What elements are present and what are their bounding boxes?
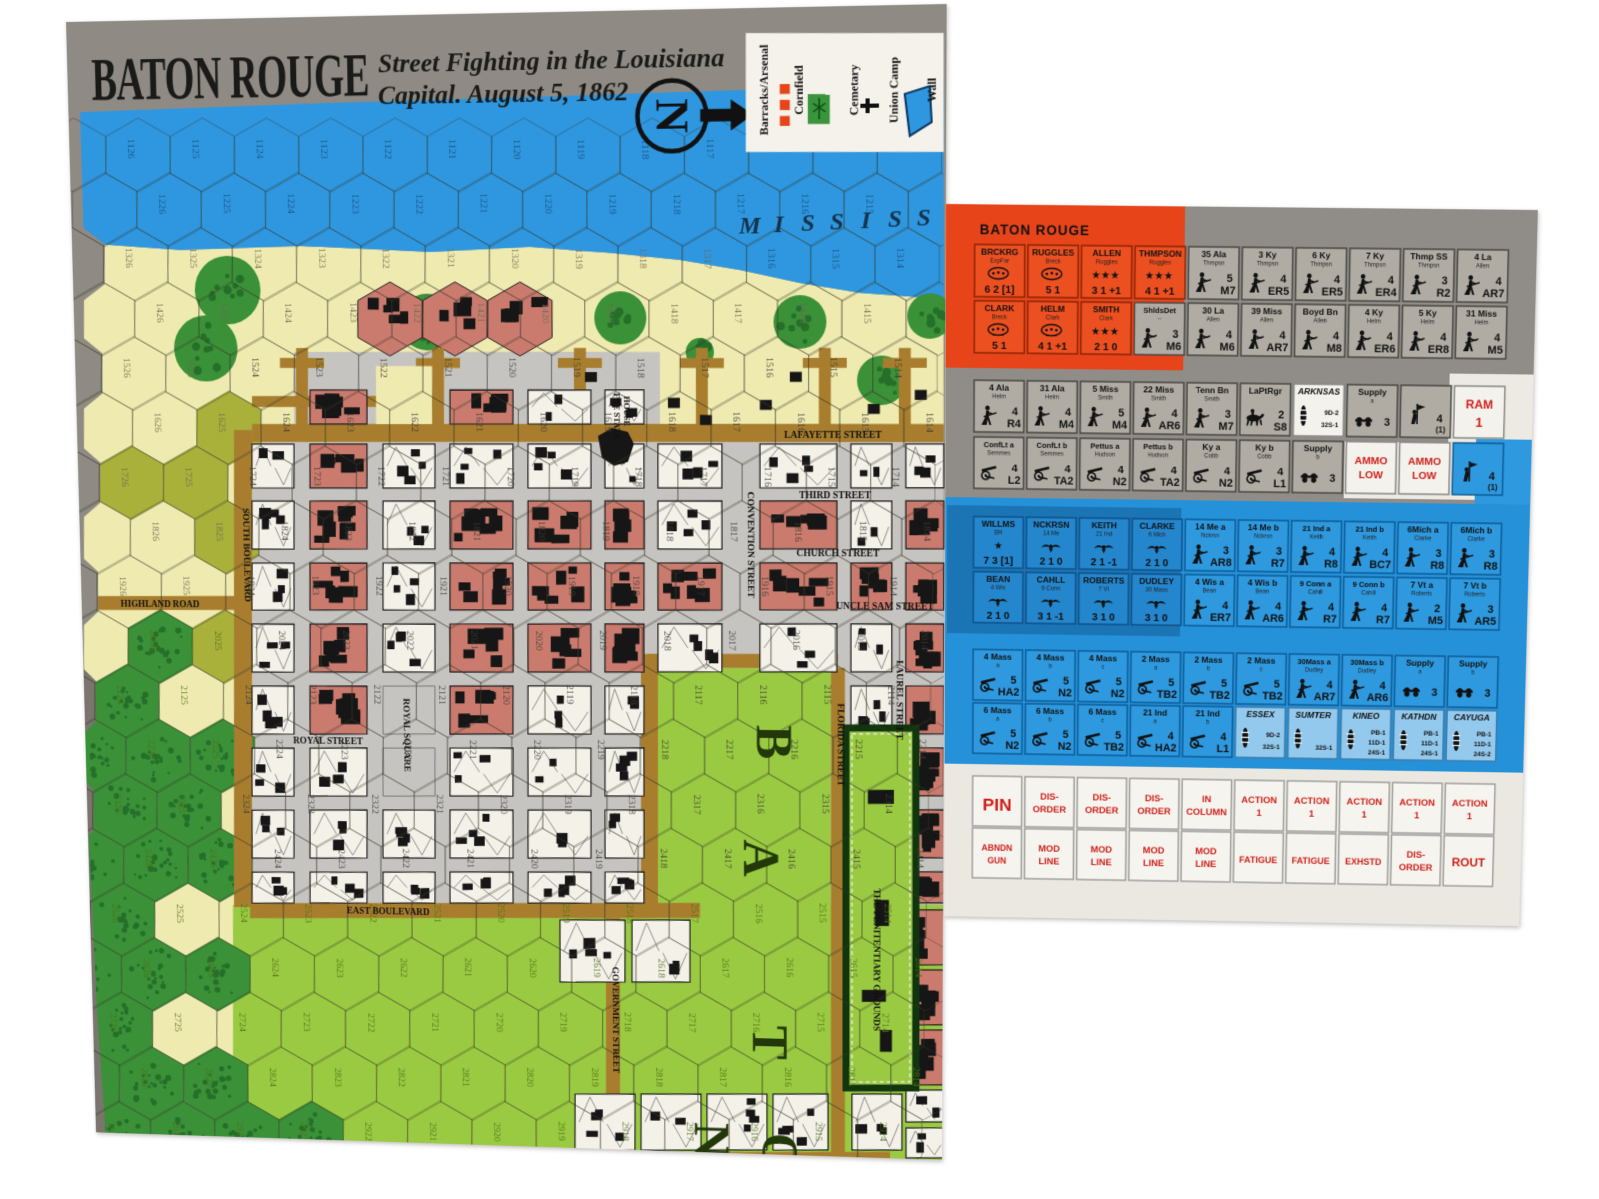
svg-text:6Mich a: 6Mich a bbox=[1407, 524, 1439, 534]
svg-text:2116: 2116 bbox=[757, 685, 768, 705]
svg-text:M5: M5 bbox=[1488, 344, 1504, 356]
svg-text:ACTION: ACTION bbox=[1241, 795, 1277, 806]
svg-text:2: 2 bbox=[1434, 603, 1440, 615]
svg-text:Wall: Wall bbox=[926, 78, 939, 102]
svg-text:4 La: 4 La bbox=[1474, 252, 1492, 262]
svg-text:ALLEN: ALLEN bbox=[1092, 248, 1121, 258]
svg-text:2719: 2719 bbox=[557, 1012, 568, 1032]
svg-text:THE PENITENTIARY GROUNDS: THE PENITENTIARY GROUNDS bbox=[871, 888, 881, 1031]
svg-text:N2: N2 bbox=[1058, 687, 1072, 699]
svg-text:1319: 1319 bbox=[573, 248, 584, 269]
svg-text:2721: 2721 bbox=[429, 1013, 440, 1033]
svg-text:5 Ky: 5 Ky bbox=[1419, 308, 1438, 318]
svg-text:2816: 2816 bbox=[782, 1067, 793, 1087]
svg-text:4: 4 bbox=[1171, 465, 1178, 477]
svg-text:I: I bbox=[773, 211, 784, 238]
svg-text:R4: R4 bbox=[1007, 418, 1022, 430]
svg-text:1: 1 bbox=[1361, 810, 1367, 821]
svg-text:LOW: LOW bbox=[1359, 469, 1383, 481]
svg-text:2318: 2318 bbox=[626, 795, 637, 815]
svg-text:1822: 1822 bbox=[406, 521, 417, 541]
svg-text:N2: N2 bbox=[1219, 477, 1233, 489]
svg-text:24S-1: 24S-1 bbox=[1421, 750, 1439, 757]
svg-text:1318: 1318 bbox=[637, 248, 648, 269]
svg-text:Nckrsn: Nckrsn bbox=[1254, 534, 1273, 540]
svg-text:Cobb: Cobb bbox=[1204, 453, 1219, 459]
svg-text:SUMTER: SUMTER bbox=[1295, 710, 1331, 720]
svg-text:2615: 2615 bbox=[847, 958, 858, 978]
svg-text:LINE: LINE bbox=[1195, 859, 1217, 870]
svg-text:1717: 1717 bbox=[697, 466, 708, 486]
svg-text:1: 1 bbox=[1414, 811, 1420, 822]
svg-text:14 Me a: 14 Me a bbox=[1195, 522, 1226, 532]
svg-text:Clarke: Clarke bbox=[1467, 537, 1485, 543]
svg-text:5: 5 bbox=[1010, 728, 1016, 740]
svg-text:R8: R8 bbox=[1324, 558, 1338, 570]
svg-text:7 Vt a: 7 Vt a bbox=[1410, 580, 1433, 590]
svg-text:Helm: Helm bbox=[1045, 395, 1059, 401]
svg-text:ARKNSAS: ARKNSAS bbox=[1297, 386, 1341, 397]
svg-text:S: S bbox=[801, 209, 815, 236]
svg-text:Union Camp: Union Camp bbox=[888, 57, 901, 123]
svg-text:2921: 2921 bbox=[427, 1122, 438, 1141]
svg-text:AR5: AR5 bbox=[1474, 616, 1496, 628]
svg-text:4: 4 bbox=[1328, 602, 1335, 614]
svg-text:4: 4 bbox=[1171, 408, 1178, 420]
svg-text:1419: 1419 bbox=[604, 303, 615, 324]
svg-text:AMMO: AMMO bbox=[1408, 456, 1441, 468]
svg-text:Keith: Keith bbox=[1310, 535, 1324, 541]
svg-text:3 Ky: 3 Ky bbox=[1258, 250, 1276, 260]
svg-text:35 Ala: 35 Ala bbox=[1201, 249, 1226, 259]
svg-text:Allen: Allen bbox=[1313, 318, 1326, 324]
svg-text:R7: R7 bbox=[1323, 614, 1337, 626]
svg-text:1: 1 bbox=[1467, 811, 1473, 822]
svg-text:1720: 1720 bbox=[505, 466, 516, 486]
svg-text:BEAN: BEAN bbox=[986, 574, 1010, 584]
svg-text:2516: 2516 bbox=[753, 904, 764, 924]
svg-text:4 Ala: 4 Ala bbox=[989, 382, 1009, 392]
svg-text:4: 4 bbox=[1388, 275, 1395, 287]
svg-text:THIRD STREET: THIRD STREET bbox=[799, 491, 872, 501]
svg-text:2722: 2722 bbox=[365, 1013, 376, 1033]
svg-text:2226: 2226 bbox=[145, 739, 156, 759]
svg-text:2424: 2424 bbox=[272, 849, 283, 869]
svg-text:4: 4 bbox=[1495, 276, 1502, 288]
svg-text:4: 4 bbox=[1436, 413, 1443, 425]
svg-text:1722: 1722 bbox=[375, 466, 386, 486]
svg-text:1624: 1624 bbox=[280, 412, 291, 432]
svg-text:1421: 1421 bbox=[475, 302, 486, 322]
svg-text:M7: M7 bbox=[1220, 285, 1235, 297]
svg-text:1324: 1324 bbox=[252, 248, 263, 268]
svg-text:4: 4 bbox=[1327, 679, 1334, 691]
svg-text:Cemetary: Cemetary bbox=[848, 64, 861, 115]
svg-text:S: S bbox=[830, 208, 844, 235]
svg-text:DIS-: DIS- bbox=[1145, 793, 1164, 804]
svg-text:2724: 2724 bbox=[237, 1012, 248, 1031]
svg-text:1614: 1614 bbox=[923, 412, 934, 433]
svg-text:Barracks/Arsenal: Barracks/Arsenal bbox=[758, 44, 771, 135]
svg-text:1922: 1922 bbox=[373, 576, 384, 596]
svg-text:1217: 1217 bbox=[735, 193, 746, 214]
svg-text:M8: M8 bbox=[1327, 343, 1342, 355]
svg-text:1418: 1418 bbox=[668, 303, 679, 324]
svg-text:EAST BOULEVARD: EAST BOULEVARD bbox=[347, 906, 430, 918]
svg-text:N: N bbox=[646, 98, 698, 134]
svg-text:2723: 2723 bbox=[301, 1012, 312, 1031]
svg-text:4: 4 bbox=[1224, 465, 1231, 477]
svg-text:Bean: Bean bbox=[1255, 589, 1269, 595]
svg-text:31 Miss: 31 Miss bbox=[1466, 308, 1497, 318]
svg-text:Supply: Supply bbox=[1459, 659, 1488, 669]
svg-text:Ky b: Ky b bbox=[1255, 443, 1274, 453]
svg-text:TA2: TA2 bbox=[1054, 475, 1074, 487]
svg-text:NCKRSN: NCKRSN bbox=[1033, 519, 1069, 529]
svg-text:Smith: Smith bbox=[1151, 396, 1166, 402]
svg-text:2623: 2623 bbox=[334, 958, 345, 978]
svg-text:1524: 1524 bbox=[249, 357, 260, 377]
svg-text:PIN: PIN bbox=[982, 795, 1011, 815]
svg-text:1714: 1714 bbox=[889, 467, 900, 488]
svg-text:AR6: AR6 bbox=[1159, 420, 1181, 432]
svg-text:1415: 1415 bbox=[861, 303, 872, 324]
svg-text:--: -- bbox=[1158, 317, 1162, 323]
svg-text:4 1 +1: 4 1 +1 bbox=[1038, 340, 1067, 352]
svg-text:T: T bbox=[741, 1025, 798, 1060]
svg-text:2715: 2715 bbox=[815, 1012, 826, 1032]
svg-text:Cahill: Cahill bbox=[1361, 591, 1376, 597]
svg-text:2016: 2016 bbox=[790, 630, 801, 650]
svg-text:2718: 2718 bbox=[622, 1012, 633, 1032]
svg-text:4: 4 bbox=[1226, 329, 1233, 341]
svg-text:1814: 1814 bbox=[921, 521, 932, 542]
svg-text:1823: 1823 bbox=[342, 521, 353, 541]
svg-text:2325: 2325 bbox=[176, 794, 187, 814]
svg-text:Roberts: Roberts bbox=[1411, 591, 1432, 597]
svg-text:5: 5 bbox=[1221, 678, 1227, 690]
svg-text:2922: 2922 bbox=[362, 1122, 373, 1141]
svg-text:1620: 1620 bbox=[537, 412, 548, 432]
svg-text:COLUMN: COLUMN bbox=[1186, 807, 1227, 818]
svg-text:4 Mass: 4 Mass bbox=[1036, 652, 1064, 662]
svg-text:M4: M4 bbox=[1112, 419, 1128, 431]
svg-text:1323: 1323 bbox=[316, 248, 327, 268]
svg-text:2021: 2021 bbox=[468, 630, 479, 650]
svg-text:4: 4 bbox=[1379, 680, 1386, 692]
svg-text:c: c bbox=[1101, 718, 1104, 724]
svg-text:2614: 2614 bbox=[913, 958, 924, 978]
svg-text:2 1 0: 2 1 0 bbox=[987, 610, 1010, 622]
svg-text:EXHSTD: EXHSTD bbox=[1345, 857, 1382, 867]
svg-text:2915: 2915 bbox=[813, 1122, 824, 1142]
svg-text:2824: 2824 bbox=[267, 1068, 278, 1087]
svg-text:2317: 2317 bbox=[691, 795, 702, 815]
svg-text:ACTION: ACTION bbox=[1346, 797, 1382, 808]
svg-text:2521: 2521 bbox=[431, 904, 442, 924]
svg-text:2 1 -1: 2 1 -1 bbox=[1091, 556, 1118, 568]
svg-text:4 Wis: 4 Wis bbox=[991, 585, 1006, 591]
svg-text:2 Mass: 2 Mass bbox=[1194, 655, 1222, 665]
svg-text:21 Ind: 21 Ind bbox=[1196, 708, 1220, 718]
svg-text:2 1 0: 2 1 0 bbox=[1094, 341, 1117, 353]
svg-text:9D-2: 9D-2 bbox=[1324, 410, 1339, 417]
svg-text:4: 4 bbox=[1277, 466, 1284, 478]
svg-text:AR7: AR7 bbox=[1314, 691, 1336, 703]
svg-text:1516: 1516 bbox=[763, 357, 774, 378]
svg-text:Keith: Keith bbox=[1363, 535, 1377, 541]
svg-text:AR7: AR7 bbox=[1482, 288, 1504, 300]
svg-text:PB-1: PB-1 bbox=[1371, 730, 1386, 737]
svg-text:2717: 2717 bbox=[686, 1013, 697, 1033]
svg-text:GUN: GUN bbox=[987, 856, 1006, 866]
svg-text:4: 4 bbox=[1279, 330, 1286, 342]
svg-text:2619: 2619 bbox=[591, 958, 602, 978]
svg-text:Tenn Bn: Tenn Bn bbox=[1195, 385, 1229, 395]
svg-text:1923: 1923 bbox=[310, 575, 321, 595]
svg-text:KEITH: KEITH bbox=[1092, 520, 1117, 530]
svg-text:11D-1: 11D-1 bbox=[1474, 741, 1492, 748]
svg-text:ConfLt b: ConfLt b bbox=[1036, 441, 1067, 450]
svg-text:1317: 1317 bbox=[701, 248, 712, 269]
svg-text:N2: N2 bbox=[1005, 740, 1019, 752]
svg-text:Smith: Smith bbox=[1204, 397, 1219, 403]
svg-text:1325: 1325 bbox=[187, 248, 198, 268]
svg-text:TB2: TB2 bbox=[1104, 742, 1124, 754]
svg-text:1826: 1826 bbox=[150, 521, 161, 541]
svg-text:Cobb: Cobb bbox=[1257, 454, 1272, 460]
svg-text:2326: 2326 bbox=[112, 794, 123, 813]
svg-text:Ruggles: Ruggles bbox=[1096, 260, 1118, 266]
svg-text:1726: 1726 bbox=[119, 467, 130, 487]
svg-text:Pettus b: Pettus b bbox=[1143, 442, 1173, 451]
svg-text:2923: 2923 bbox=[298, 1122, 309, 1141]
svg-text:Supply: Supply bbox=[1406, 658, 1435, 668]
svg-text:1514: 1514 bbox=[892, 358, 903, 379]
svg-text:MOD: MOD bbox=[1143, 845, 1165, 856]
svg-text:AR7: AR7 bbox=[1266, 342, 1288, 354]
svg-text:AR8: AR8 bbox=[1210, 557, 1232, 569]
svg-text:ORDER: ORDER bbox=[1033, 804, 1066, 815]
svg-text:DIS-: DIS- bbox=[1040, 792, 1059, 803]
svg-text:MOD: MOD bbox=[1195, 846, 1217, 857]
svg-text:2519: 2519 bbox=[560, 903, 571, 923]
svg-text:2626: 2626 bbox=[141, 959, 152, 978]
svg-text:2423: 2423 bbox=[336, 849, 347, 869]
svg-text:14 Me: 14 Me bbox=[1043, 531, 1060, 537]
svg-text:7 Vt: 7 Vt bbox=[1098, 587, 1109, 593]
svg-text:M6: M6 bbox=[1220, 341, 1235, 353]
svg-text:1523: 1523 bbox=[313, 357, 324, 377]
svg-text:4: 4 bbox=[1012, 463, 1019, 475]
svg-text:3 1 +1: 3 1 +1 bbox=[1092, 285, 1121, 297]
svg-text:Dudley: Dudley bbox=[1305, 668, 1324, 674]
svg-text:2121: 2121 bbox=[436, 685, 447, 705]
svg-text:2518: 2518 bbox=[624, 904, 635, 924]
svg-text:2918: 2918 bbox=[619, 1121, 630, 1141]
svg-text:Helm: Helm bbox=[1420, 320, 1434, 326]
svg-text:6 Mich: 6 Mich bbox=[1148, 532, 1165, 538]
svg-text:2525: 2525 bbox=[174, 904, 185, 923]
svg-text:3: 3 bbox=[1172, 329, 1178, 341]
svg-text:ER5: ER5 bbox=[1321, 286, 1343, 298]
svg-text:1521: 1521 bbox=[442, 357, 453, 377]
svg-text:5: 5 bbox=[1063, 729, 1069, 741]
svg-text:Smith: Smith bbox=[1098, 395, 1113, 401]
svg-text:DIS-: DIS- bbox=[1092, 793, 1111, 804]
svg-text:1315: 1315 bbox=[829, 248, 840, 269]
svg-text:O: O bbox=[751, 1132, 808, 1160]
svg-text:24S-1: 24S-1 bbox=[1368, 750, 1386, 757]
svg-text:1820: 1820 bbox=[536, 521, 547, 541]
svg-text:1424: 1424 bbox=[282, 303, 293, 323]
svg-text:1925: 1925 bbox=[180, 576, 191, 596]
svg-text:L1: L1 bbox=[1216, 743, 1229, 755]
svg-text:ER4: ER4 bbox=[1375, 287, 1397, 299]
svg-text:1126: 1126 bbox=[125, 139, 136, 159]
svg-text:2214: 2214 bbox=[916, 739, 927, 759]
svg-text:Capital. August 5, 1862: Capital. August 5, 1862 bbox=[378, 76, 629, 111]
svg-text:★: ★ bbox=[1164, 270, 1174, 282]
svg-text:RAM: RAM bbox=[1466, 397, 1494, 411]
svg-text:30 Mass: 30 Mass bbox=[1145, 588, 1167, 594]
svg-text:★: ★ bbox=[1110, 326, 1120, 338]
svg-text:ER7: ER7 bbox=[1210, 612, 1231, 624]
svg-text:CONVENTION STREET: CONVENTION STREET bbox=[745, 492, 755, 599]
svg-text:2826: 2826 bbox=[139, 1068, 150, 1087]
svg-text:3: 3 bbox=[1329, 473, 1335, 485]
svg-text:ER5: ER5 bbox=[1268, 286, 1290, 298]
svg-text:M7: M7 bbox=[1218, 421, 1233, 433]
svg-text:ER8: ER8 bbox=[1428, 344, 1450, 356]
svg-text:1121: 1121 bbox=[446, 139, 457, 159]
svg-text:ConfLt a: ConfLt a bbox=[984, 440, 1015, 449]
svg-text:MOD: MOD bbox=[1091, 845, 1113, 856]
svg-text:2322: 2322 bbox=[369, 794, 380, 814]
svg-text:1526: 1526 bbox=[121, 358, 132, 378]
svg-text:Thmpsn: Thmpsn bbox=[1203, 261, 1225, 267]
svg-text:30Mass a: 30Mass a bbox=[1298, 657, 1332, 666]
svg-text:BATON ROUGE: BATON ROUGE bbox=[980, 222, 1090, 238]
svg-text:FATIGUE: FATIGUE bbox=[1292, 856, 1330, 866]
svg-text:1819: 1819 bbox=[600, 521, 611, 541]
svg-text:1220: 1220 bbox=[542, 193, 553, 214]
svg-text:1218: 1218 bbox=[671, 194, 682, 215]
svg-text:Clarke: Clarke bbox=[1414, 536, 1432, 542]
svg-text:1618: 1618 bbox=[666, 412, 677, 432]
svg-text:2224: 2224 bbox=[273, 739, 284, 759]
svg-text:2823: 2823 bbox=[332, 1068, 343, 1087]
svg-text:★: ★ bbox=[1100, 326, 1110, 338]
svg-text:1921: 1921 bbox=[437, 576, 448, 596]
svg-text:Supply: Supply bbox=[1304, 443, 1333, 453]
svg-text:2315: 2315 bbox=[819, 794, 830, 814]
svg-text:1515: 1515 bbox=[827, 357, 838, 378]
svg-text:1125: 1125 bbox=[189, 139, 200, 159]
svg-text:S8: S8 bbox=[1274, 421, 1288, 433]
svg-text:2019: 2019 bbox=[597, 630, 608, 650]
svg-text:4 Ky: 4 Ky bbox=[1365, 307, 1383, 317]
svg-text:S: S bbox=[917, 205, 931, 233]
svg-text:7 3 [1]: 7 3 [1] bbox=[983, 555, 1013, 567]
svg-text:R7: R7 bbox=[1376, 614, 1390, 626]
svg-text:4: 4 bbox=[1280, 273, 1287, 285]
svg-text:1423: 1423 bbox=[347, 302, 358, 322]
svg-text:1416: 1416 bbox=[797, 302, 808, 323]
svg-text:1219: 1219 bbox=[606, 194, 617, 215]
svg-text:2415: 2415 bbox=[851, 849, 862, 869]
svg-text:Thmpsn: Thmpsn bbox=[1364, 262, 1386, 268]
svg-text:FLORIDA STREET: FLORIDA STREET bbox=[835, 703, 845, 787]
svg-text:2: 2 bbox=[1278, 409, 1284, 421]
svg-text:4: 4 bbox=[1381, 602, 1388, 614]
svg-text:2126: 2126 bbox=[114, 685, 125, 705]
svg-text:L1: L1 bbox=[1273, 478, 1286, 490]
svg-text:Hudson: Hudson bbox=[1148, 453, 1168, 459]
svg-text:1818: 1818 bbox=[664, 521, 675, 541]
svg-text:ORDER: ORDER bbox=[1137, 806, 1171, 817]
svg-text:2919: 2919 bbox=[556, 1121, 567, 1141]
svg-text:Supply: Supply bbox=[1358, 387, 1387, 397]
svg-text:IN: IN bbox=[1202, 794, 1211, 805]
svg-text:★: ★ bbox=[1145, 270, 1155, 282]
svg-text:PB-1: PB-1 bbox=[1477, 731, 1492, 738]
svg-text:4: 4 bbox=[1012, 406, 1019, 418]
svg-text:3: 3 bbox=[1223, 545, 1229, 557]
svg-text:LOW: LOW bbox=[1412, 470, 1437, 482]
svg-text:2926: 2926 bbox=[106, 1122, 117, 1141]
svg-text:Street Fighting in the Louisia: Street Fighting in the Louisiana bbox=[378, 41, 725, 78]
svg-text:SOUTH BOULEVARD: SOUTH BOULEVARD bbox=[240, 508, 252, 602]
svg-text:Breck: Breck bbox=[1045, 259, 1061, 265]
svg-text:2324: 2324 bbox=[240, 794, 251, 814]
svg-text:DUDLEY: DUDLEY bbox=[1139, 576, 1174, 586]
svg-text:7 Vt b: 7 Vt b bbox=[1463, 580, 1486, 590]
svg-text:2314: 2314 bbox=[883, 794, 894, 814]
svg-text:★: ★ bbox=[1154, 270, 1164, 282]
svg-text:CLARKE: CLARKE bbox=[1140, 521, 1176, 531]
svg-text:BATON ROUGE: BATON ROUGE bbox=[91, 42, 370, 114]
svg-text:2622: 2622 bbox=[398, 958, 409, 978]
svg-text:ER6: ER6 bbox=[1374, 343, 1396, 355]
svg-text:2 1 0: 2 1 0 bbox=[1040, 556, 1063, 568]
svg-text:LAUREL STREET: LAUREL STREET bbox=[894, 660, 904, 740]
svg-text:2421: 2421 bbox=[464, 849, 475, 869]
svg-text:KINEO: KINEO bbox=[1353, 711, 1380, 721]
svg-text:9D-2: 9D-2 bbox=[1266, 732, 1280, 739]
svg-text:4: 4 bbox=[1168, 731, 1175, 743]
svg-text:5 1: 5 1 bbox=[1046, 284, 1061, 296]
svg-text:2523: 2523 bbox=[302, 904, 313, 924]
svg-text:1117: 1117 bbox=[704, 138, 715, 158]
svg-text:TA2: TA2 bbox=[1160, 477, 1180, 489]
svg-text:1120: 1120 bbox=[511, 139, 522, 159]
svg-text:2515: 2515 bbox=[816, 903, 827, 923]
svg-text:CHAMPAGNE STREET: CHAMPAGNE STREET bbox=[712, 1155, 813, 1160]
svg-text:BC7: BC7 bbox=[1369, 559, 1391, 571]
svg-text:2024: 2024 bbox=[276, 630, 287, 650]
svg-text:CHURCH STREET: CHURCH STREET bbox=[796, 548, 880, 559]
svg-text:R8: R8 bbox=[1430, 560, 1444, 572]
svg-text:Boyd Bn: Boyd Bn bbox=[1303, 306, 1338, 317]
svg-text:2422: 2422 bbox=[400, 848, 411, 868]
svg-text:★: ★ bbox=[994, 541, 1003, 552]
svg-text:2920: 2920 bbox=[491, 1122, 502, 1142]
svg-text:1824: 1824 bbox=[279, 521, 290, 541]
svg-text:2119: 2119 bbox=[564, 685, 575, 705]
svg-text:Pettus a: Pettus a bbox=[1090, 441, 1120, 450]
svg-text:SMITH: SMITH bbox=[1093, 304, 1120, 314]
